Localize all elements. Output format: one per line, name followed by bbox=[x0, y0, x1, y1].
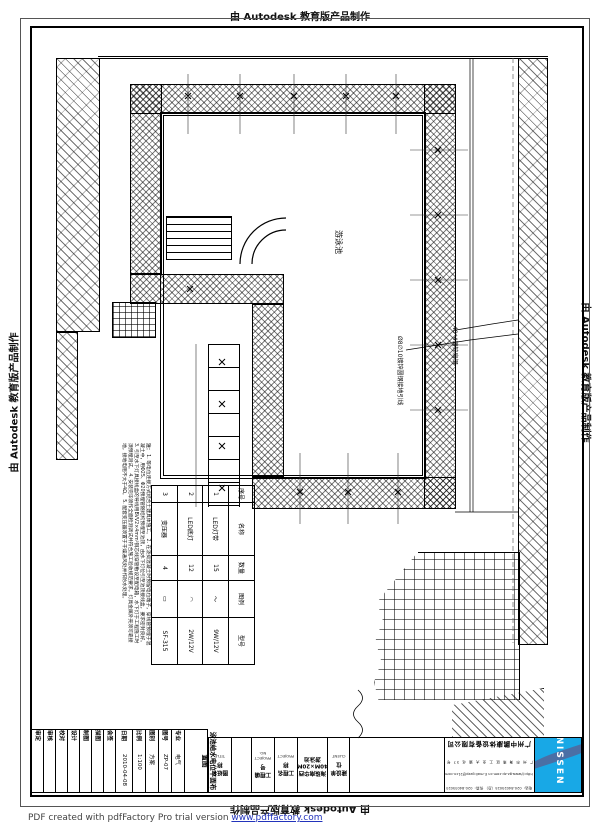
strip-col-shending: 审定 bbox=[32, 730, 44, 792]
strip-label-number: 图号 bbox=[162, 730, 170, 754]
legend-2-name: LED底灯 bbox=[177, 503, 203, 556]
wall-hatch-right bbox=[518, 58, 548, 645]
pdf-factory-link[interactable]: www.pdffactory.com bbox=[231, 813, 322, 823]
company-name: 广州中鹏康体设备有限公司 bbox=[447, 740, 531, 750]
label-title-en: TITLE bbox=[215, 754, 225, 759]
legend-2-model: 2W/12V bbox=[177, 618, 203, 665]
strip-label-date: 日期 bbox=[121, 730, 129, 754]
callout-flat-steel-wrap: 40*4镀锌扁钢 bbox=[450, 326, 460, 406]
label-client-cn: 建设单位 bbox=[328, 761, 350, 777]
company-logo: NISSEN bbox=[535, 738, 581, 792]
legend-row-2: 2 LED底灯 12 ◠ 2W/12V bbox=[177, 486, 203, 665]
strip-number-value: ZP-07 bbox=[163, 754, 169, 770]
legend-2-qty: 12 bbox=[177, 556, 203, 581]
legend-header-qty: 数量 bbox=[229, 556, 255, 581]
legend-header-row: 序号 名称 数量 图例 型号 bbox=[229, 486, 255, 665]
label-project-en: PROJECT bbox=[278, 754, 294, 759]
legend-table: 序号 名称 数量 图例 型号 1 LED灯带 15 ～ 9W/12V 2 LED… bbox=[151, 485, 255, 665]
label-projectno-en: PROJECT NO. bbox=[252, 751, 274, 761]
strip-label-6: 会签 bbox=[106, 730, 114, 754]
legend-3-no: 3 bbox=[152, 486, 178, 503]
cell-projectno-label: 工程编号PROJECT NO. bbox=[252, 738, 275, 792]
strip-label-category: 图别 bbox=[149, 730, 157, 754]
legend-header-model: 型号 bbox=[229, 618, 255, 665]
strip-label-0: 审定 bbox=[34, 730, 42, 754]
strip-col-zhitu: 制图 bbox=[80, 730, 92, 792]
cell-project-label: 工程名称PROJECT bbox=[275, 738, 298, 792]
pool-label: 游泳池 bbox=[332, 230, 344, 274]
logo-text: NISSEN bbox=[536, 738, 581, 785]
strip-label-2: 校对 bbox=[58, 730, 66, 754]
strip-label-5: 描图 bbox=[94, 730, 102, 754]
pool-label-wrap: 游泳池 bbox=[332, 230, 344, 274]
strip-col-category: 图别方案 bbox=[146, 730, 159, 792]
legend-2-no: 2 bbox=[177, 486, 203, 503]
site-fence-line bbox=[98, 56, 548, 59]
legend-3-qty: 4 bbox=[152, 556, 178, 581]
strip-discipline-value: 电气 bbox=[175, 754, 183, 765]
pool-deck-bottom bbox=[252, 477, 456, 509]
strip-scale-value: 1:100 bbox=[137, 754, 143, 770]
led-underwater-light-symbol: ◠ bbox=[177, 581, 203, 618]
legend-3-name: 变压器 bbox=[152, 503, 178, 556]
note-item-5: 5. 配套变压器须置于干燥通风处并作防水处理。 bbox=[121, 499, 126, 601]
strip-col-discipline: 专业电气 bbox=[172, 730, 185, 792]
plaza-top-edge bbox=[418, 552, 520, 553]
title-block: 图纸名称TITLE 工程编号PROJECT NO. 工程名称PROJECT 海珠… bbox=[208, 737, 582, 793]
strip-date-value: 2010-04-08 bbox=[122, 754, 128, 786]
callout-ground-rod: Ø8∅10镀锌圆钢接地引线 bbox=[394, 336, 405, 466]
pdf-notice-text: PDF created with pdfFactory Pro trial ve… bbox=[28, 813, 231, 823]
strip-label-discipline: 专业 bbox=[175, 730, 183, 754]
title-strip: 审定 审核 校对 设计 制图 描图 会签 日期2010-04-08 比例1:10… bbox=[31, 729, 208, 793]
company-address: 广 州 市 海 珠 区 工 业 大 道 北 37 号 bbox=[446, 759, 533, 764]
label-projectno-cn: 工程编号 bbox=[252, 763, 274, 779]
led-strip-run bbox=[208, 344, 240, 507]
company-phone: 电话：020-84025025（总） 传真：020-84035025 bbox=[446, 785, 532, 790]
strip-label-3: 设计 bbox=[70, 730, 78, 754]
strip-col-date: 日期2010-04-08 bbox=[116, 730, 133, 792]
legend-table-wrap: 序号 名称 数量 图例 型号 1 LED灯带 15 ～ 9W/12V 2 LED… bbox=[150, 485, 255, 663]
project-name: 海珠南华西40M×20M游泳池 bbox=[298, 754, 328, 775]
legend-1-qty: 15 bbox=[203, 556, 229, 581]
strip-col-sheji: 设计 bbox=[68, 730, 80, 792]
strip-col-shenhe: 审核 bbox=[44, 730, 56, 792]
callout-ground-rod-wrap: Ø8∅10镀锌圆钢接地引线 bbox=[394, 336, 405, 466]
cell-title-value bbox=[232, 738, 253, 792]
wall-hatch-left-upper bbox=[56, 58, 100, 332]
callout-flat-steel: 40*4镀锌扁钢 bbox=[450, 326, 460, 406]
notes-title: 注： bbox=[145, 443, 150, 453]
legend-row-3: 3 变压器 4 ▭ SF-315 bbox=[152, 486, 178, 665]
pool-deck-right bbox=[424, 84, 456, 509]
wall-hatch-left-lower bbox=[56, 332, 78, 460]
cell-title-label: 图纸名称TITLE bbox=[209, 738, 232, 792]
legend-3-model: SF-315 bbox=[152, 618, 178, 665]
pool-deck-notch-vertical bbox=[252, 304, 284, 477]
strip-col-miaotu: 描图 bbox=[92, 730, 104, 792]
label-title-cn: 图纸名称 bbox=[209, 761, 231, 777]
legend-row-1: 1 LED灯带 15 ～ 9W/12V bbox=[203, 486, 229, 665]
pool-stairs bbox=[166, 216, 232, 260]
drawing-sheet: 由 Autodesk 教育版产品制作 由 Autodesk 教育版产品制作 由 … bbox=[0, 0, 600, 828]
strip-col-number: 图号ZP-07 bbox=[159, 730, 172, 792]
pool-deck-left bbox=[130, 84, 162, 274]
strip-col-huiqian: 会签 bbox=[104, 730, 116, 792]
legend-1-no: 1 bbox=[203, 486, 229, 503]
cell-client-value bbox=[350, 738, 444, 792]
autodesk-stamp-left: 由 Autodesk 教育版产品制作 bbox=[6, 343, 21, 473]
label-project-cn: 工程名称 bbox=[275, 761, 297, 777]
pdf-factory-notice: PDF created with pdfFactory Pro trial ve… bbox=[28, 813, 322, 823]
legend-header-no: 序号 bbox=[229, 486, 255, 503]
legend-1-model: 9W/12V bbox=[203, 618, 229, 665]
legend-header-name: 名称 bbox=[229, 503, 255, 556]
label-client-en: CLIENT bbox=[332, 754, 345, 759]
legend-header-symbol: 图例 bbox=[229, 581, 255, 618]
cell-client-label: 建设单位CLIENT bbox=[328, 738, 351, 792]
strip-label-4: 制图 bbox=[82, 730, 90, 754]
pool-deck-top bbox=[130, 84, 456, 114]
strip-col-scale: 比例1:100 bbox=[133, 730, 146, 792]
legend-1-name: LED灯带 bbox=[203, 503, 229, 556]
notes-block-wrap: 注： 1. 等电位连接方式结合土建具体施工。 2. 在浇捣混凝土时预留电位端子，… bbox=[106, 443, 150, 648]
led-strip-symbol: ～ bbox=[203, 581, 229, 618]
strip-label-1: 审核 bbox=[46, 730, 54, 754]
company-block: 广州中鹏康体设备有限公司 广 州 市 海 珠 区 工 业 大 道 北 37 号 … bbox=[445, 738, 535, 792]
strip-col-jiaodui: 校对 bbox=[56, 730, 68, 792]
pool-deck-notch-horizontal bbox=[130, 274, 284, 304]
cell-project-name: 海珠南华西40M×20M游泳池 bbox=[298, 738, 328, 792]
strip-label-scale: 比例 bbox=[136, 730, 144, 754]
plaza-right-edge bbox=[519, 552, 520, 700]
transformer-symbol: ▭ bbox=[152, 581, 178, 618]
company-website: http://www.gz-zp.com.cn E-mail:gzzp@21cn… bbox=[445, 772, 533, 776]
notes-block: 注： 1. 等电位连接方式结合土建具体施工。 2. 在浇捣混凝土时预留电位端子，… bbox=[106, 443, 150, 648]
strip-category-value: 方案 bbox=[149, 754, 157, 765]
equipment-pit-box bbox=[112, 302, 156, 338]
